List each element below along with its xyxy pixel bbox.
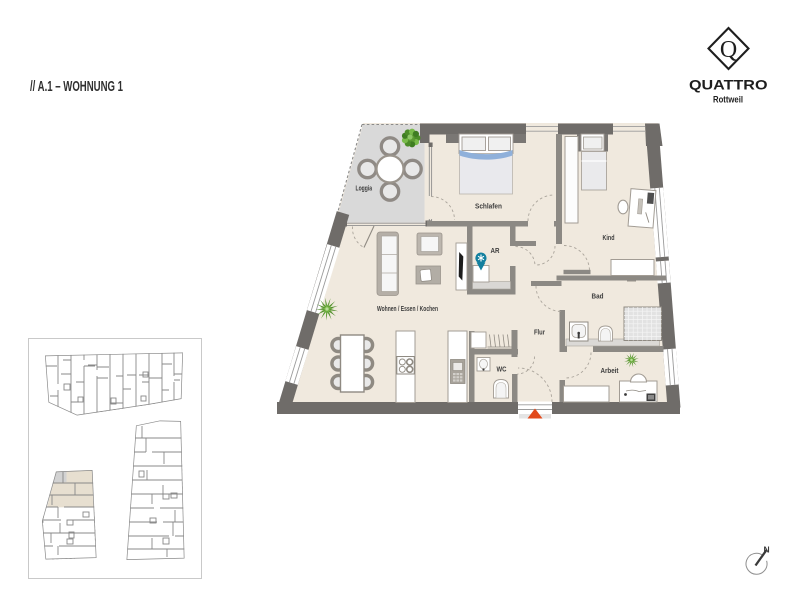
svg-text:Flur: Flur (534, 330, 545, 337)
svg-text:N: N (764, 545, 770, 555)
svg-text:Loggia: Loggia (356, 186, 373, 193)
svg-text:Q: Q (720, 37, 737, 63)
svg-text:Kind: Kind (603, 235, 615, 242)
svg-text:Schlafen: Schlafen (475, 204, 502, 211)
svg-text:Bad: Bad (592, 294, 604, 301)
svg-text:// A.1 – WOHNUNG 1: // A.1 – WOHNUNG 1 (30, 79, 123, 95)
svg-text:Arbeit: Arbeit (601, 368, 620, 375)
svg-text:Rottweil: Rottweil (713, 95, 743, 105)
svg-text:QUATTRO: QUATTRO (689, 77, 768, 93)
svg-text:Wohnen / Essen / Kochen: Wohnen / Essen / Kochen (377, 306, 438, 313)
svg-text:WC: WC (497, 367, 507, 374)
svg-text:AR: AR (491, 248, 500, 255)
